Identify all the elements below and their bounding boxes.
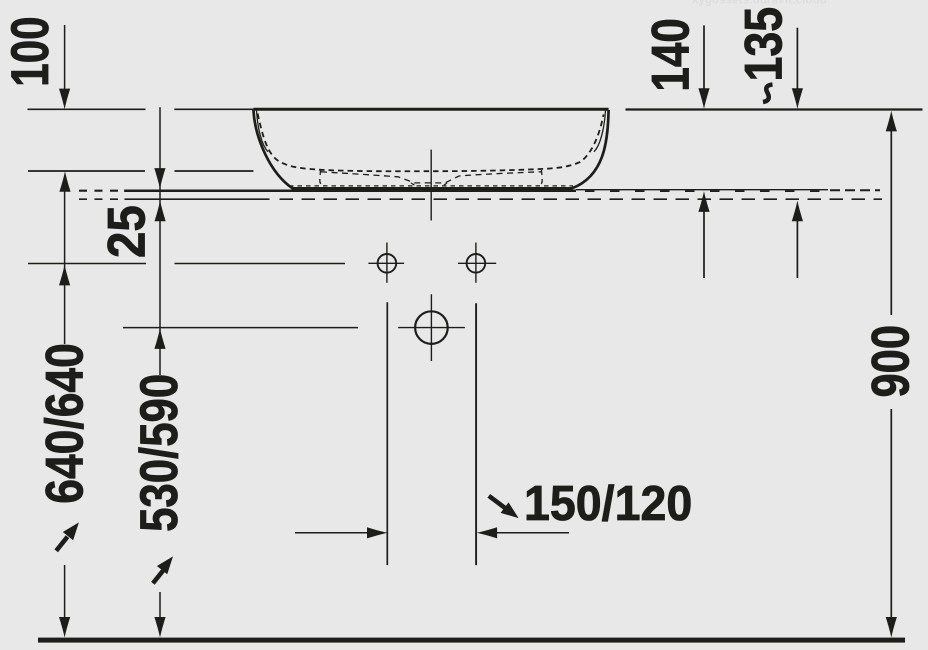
svg-text:150/120: 150/120 [524,477,692,531]
svg-text:640/640: 640/640 [36,343,95,503]
svg-text:kygossets.duravit.cloud: kygossets.duravit.cloud [692,0,827,7]
svg-text:25: 25 [96,205,156,258]
svg-text:530/590: 530/590 [130,374,189,532]
svg-text:900: 900 [861,325,920,397]
svg-text:140: 140 [642,18,701,91]
svg-text:135: 135 [735,7,793,82]
svg-text:100: 100 [2,16,61,86]
